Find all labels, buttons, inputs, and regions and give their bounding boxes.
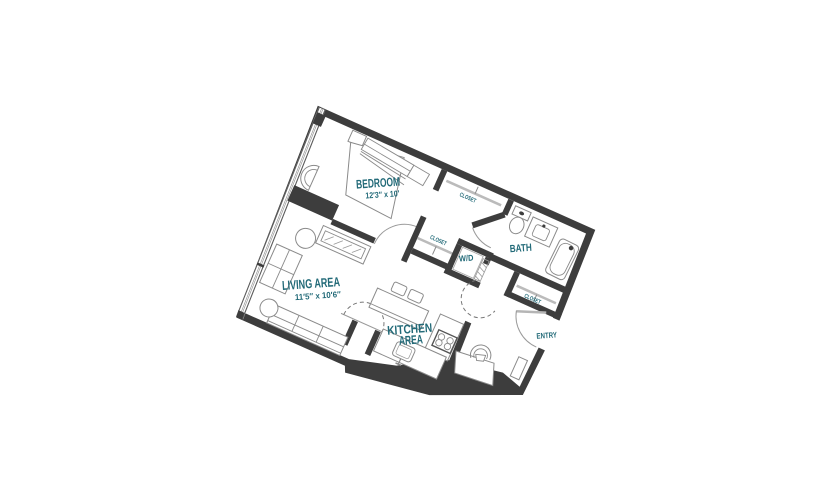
svg-text:W/D: W/D bbox=[459, 253, 474, 264]
svg-text:ENTRY: ENTRY bbox=[536, 330, 558, 340]
svg-text:11′5″ x 10′6″: 11′5″ x 10′6″ bbox=[295, 289, 342, 302]
svg-text:BATH: BATH bbox=[509, 242, 532, 255]
svg-text:AREA: AREA bbox=[398, 332, 423, 348]
